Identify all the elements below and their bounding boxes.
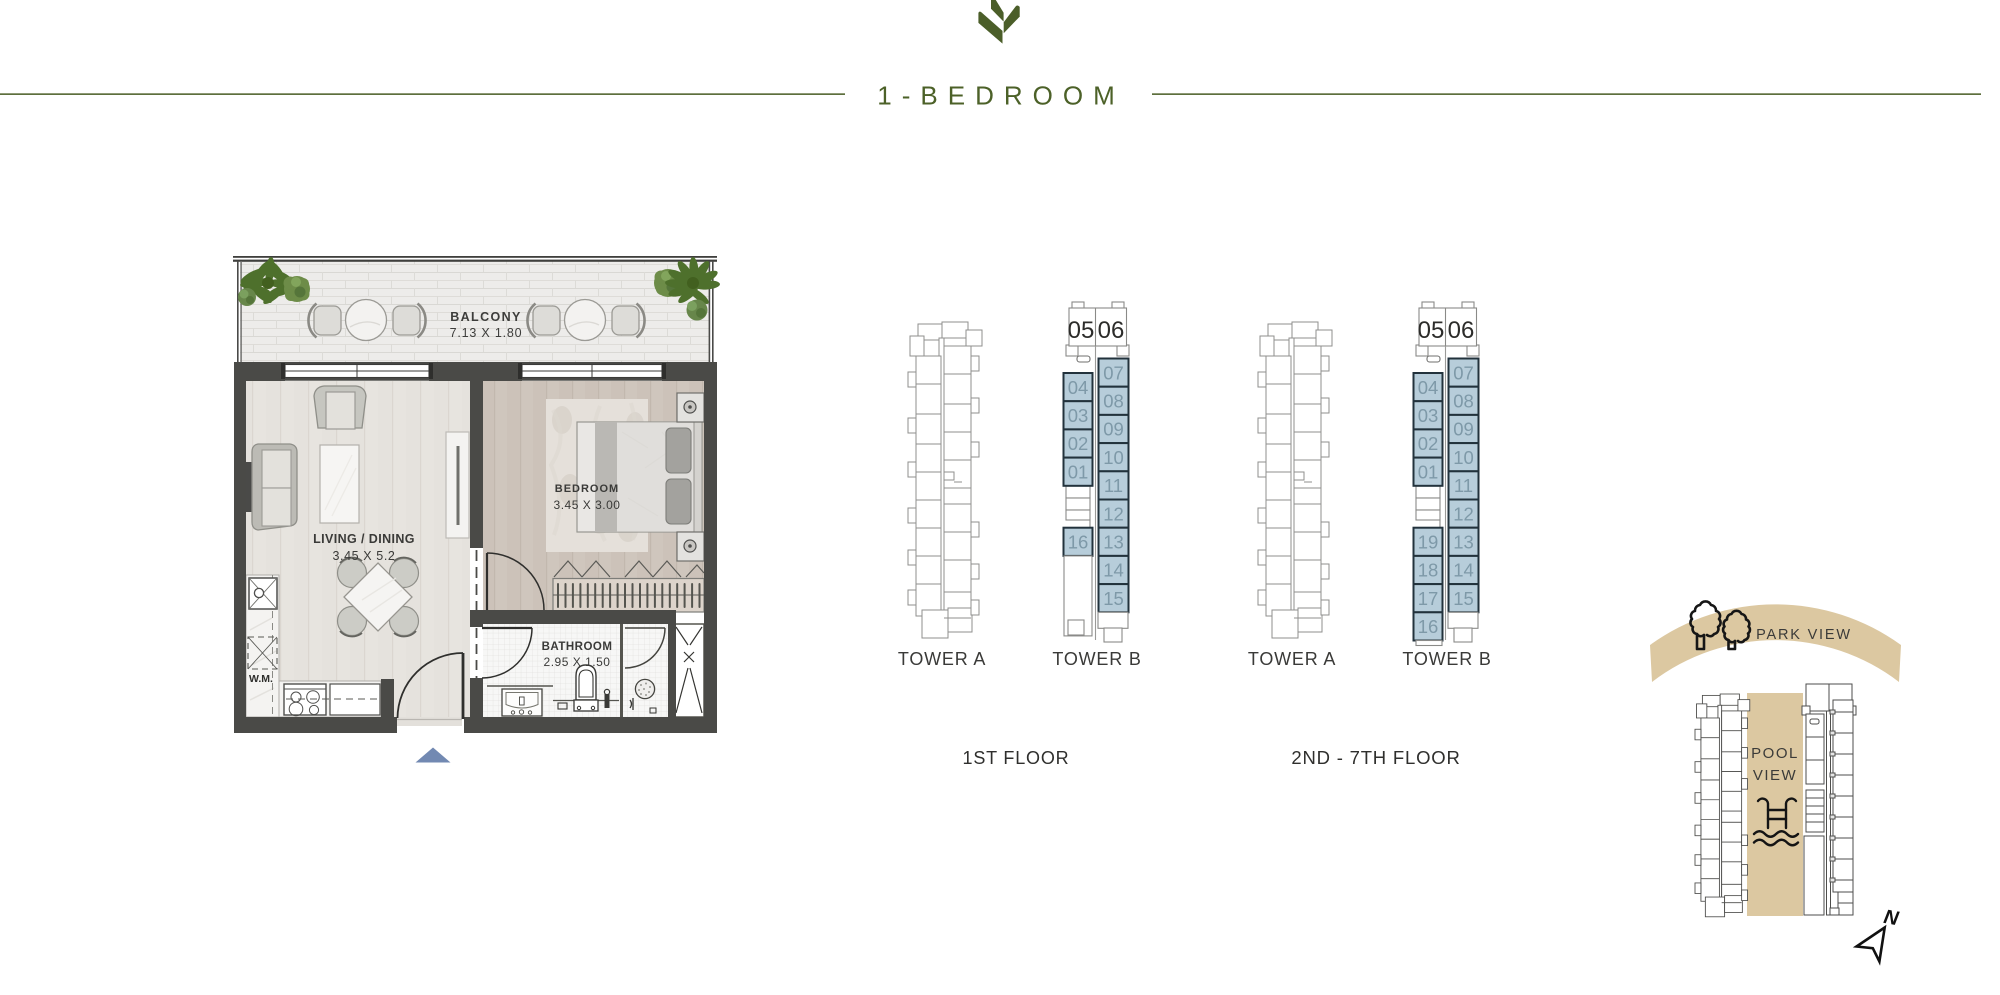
svg-text:16: 16 [1068, 532, 1089, 553]
svg-text:07: 07 [1103, 362, 1124, 383]
svg-text:PARK VIEW: PARK VIEW [1756, 627, 1852, 643]
svg-text:BEDROOM: BEDROOM [555, 483, 619, 495]
svg-text:13: 13 [1453, 532, 1474, 553]
svg-text:POOL: POOL [1751, 745, 1799, 762]
svg-text:05: 05 [1068, 317, 1095, 344]
svg-text:TOWER A: TOWER A [898, 649, 986, 669]
svg-text:14: 14 [1103, 560, 1124, 581]
svg-text:08: 08 [1453, 391, 1474, 412]
svg-text:N: N [1882, 906, 1901, 930]
svg-text:16: 16 [1418, 616, 1439, 637]
svg-text:04: 04 [1418, 377, 1439, 398]
svg-text:LIVING / DINING: LIVING / DINING [313, 532, 415, 546]
svg-text:02: 02 [1418, 433, 1439, 454]
svg-text:07: 07 [1453, 362, 1474, 383]
svg-text:01: 01 [1068, 461, 1089, 482]
svg-text:10: 10 [1453, 447, 1474, 468]
svg-text:14: 14 [1453, 560, 1474, 581]
svg-text:2.95 X 1.50: 2.95 X 1.50 [544, 655, 611, 669]
svg-text:09: 09 [1453, 419, 1474, 440]
svg-text:19: 19 [1418, 532, 1439, 553]
svg-text:2ND - 7TH FLOOR: 2ND - 7TH FLOOR [1291, 747, 1460, 768]
svg-text:04: 04 [1068, 377, 1089, 398]
svg-text:11: 11 [1454, 475, 1473, 496]
svg-text:VIEW: VIEW [1753, 767, 1797, 784]
svg-text:3.45 X 3.00: 3.45 X 3.00 [554, 498, 621, 512]
svg-text:06: 06 [1098, 317, 1125, 344]
svg-text:03: 03 [1068, 405, 1089, 426]
svg-text:17: 17 [1418, 588, 1439, 609]
svg-text:BATHROOM: BATHROOM [542, 641, 613, 653]
svg-text:03: 03 [1418, 405, 1439, 426]
svg-text:12: 12 [1453, 503, 1474, 524]
svg-text:TOWER B: TOWER B [1402, 649, 1491, 669]
svg-text:3.45 X 5.2: 3.45 X 5.2 [333, 549, 396, 563]
svg-text:01: 01 [1418, 461, 1439, 482]
svg-text:13: 13 [1103, 532, 1124, 553]
svg-text:10: 10 [1103, 447, 1124, 468]
svg-text:15: 15 [1103, 588, 1124, 609]
svg-text:BALCONY: BALCONY [450, 310, 522, 324]
svg-text:1-BEDROOM: 1-BEDROOM [877, 81, 1124, 111]
svg-text:18: 18 [1418, 560, 1439, 581]
svg-text:TOWER A: TOWER A [1248, 649, 1336, 669]
svg-text:12: 12 [1103, 503, 1124, 524]
svg-text:08: 08 [1103, 391, 1124, 412]
svg-text:11: 11 [1104, 475, 1123, 496]
svg-text:09: 09 [1103, 419, 1124, 440]
svg-text:06: 06 [1448, 317, 1475, 344]
svg-text:1ST FLOOR: 1ST FLOOR [963, 748, 1070, 768]
svg-text:05: 05 [1418, 317, 1445, 344]
svg-text:02: 02 [1068, 433, 1089, 454]
svg-text:TOWER B: TOWER B [1052, 649, 1141, 669]
svg-text:15: 15 [1453, 588, 1474, 609]
svg-text:W.M.: W.M. [249, 673, 273, 685]
svg-text:7.13 X 1.80: 7.13 X 1.80 [450, 326, 523, 340]
